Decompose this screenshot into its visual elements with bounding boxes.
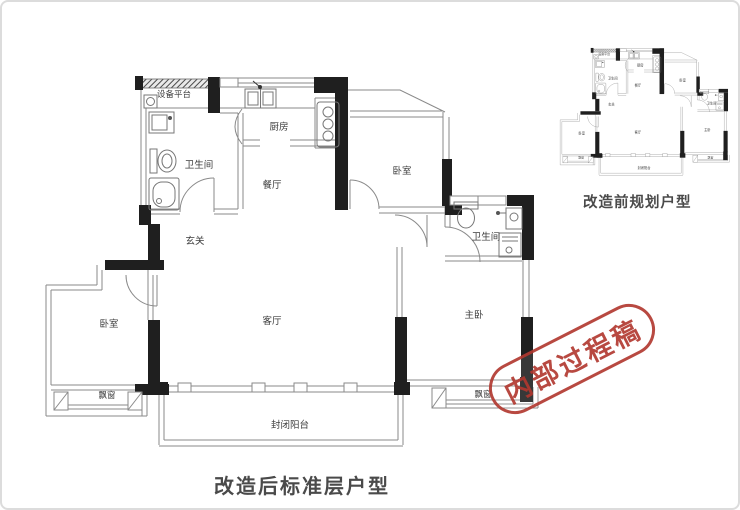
room-label-living: 客厅 xyxy=(262,315,282,327)
floorplan-page: 设备平台 卫生间 厨房 餐厅 玄关 卧室 卫生间 卧室 客厅 主卧 飘窗 飘窗 … xyxy=(0,0,740,510)
room-label-master-bedroom: 主卧 xyxy=(464,309,484,321)
room-label-bay-window-left: 飘窗 xyxy=(98,390,115,400)
room-label-bedroom-top: 卧室 xyxy=(392,165,411,177)
main-floorplan-svg: 设备平台 卫生间 厨房 餐厅 玄关 卧室 卫生间 卧室 客厅 主卧 飘窗 飘窗 … xyxy=(2,2,740,510)
main-plan-caption: 改造后标准层户型 xyxy=(214,470,390,499)
structural-walls xyxy=(105,76,534,402)
main-floorplan: 设备平台 卫生间 厨房 餐厅 玄关 卧室 卫生间 卧室 客厅 主卧 飘窗 飘窗 … xyxy=(46,76,538,446)
small-plan-caption: 改造前规划户型 xyxy=(583,191,692,212)
room-label-dining: 餐厅 xyxy=(262,179,282,191)
hatched-wall xyxy=(140,79,210,88)
small-floorplan xyxy=(560,48,729,175)
room-label-kitchen: 厨房 xyxy=(269,121,288,133)
room-label-bathroom-left: 卫生间 xyxy=(185,159,214,171)
room-label-equipment-platform: 设备平台 xyxy=(157,89,191,99)
room-label-bathroom-right: 卫生间 xyxy=(472,231,501,243)
room-label-bedroom-left: 卧室 xyxy=(99,318,118,330)
room-label-balcony: 封闭阳台 xyxy=(271,419,309,431)
room-label-entry: 玄关 xyxy=(185,235,205,247)
